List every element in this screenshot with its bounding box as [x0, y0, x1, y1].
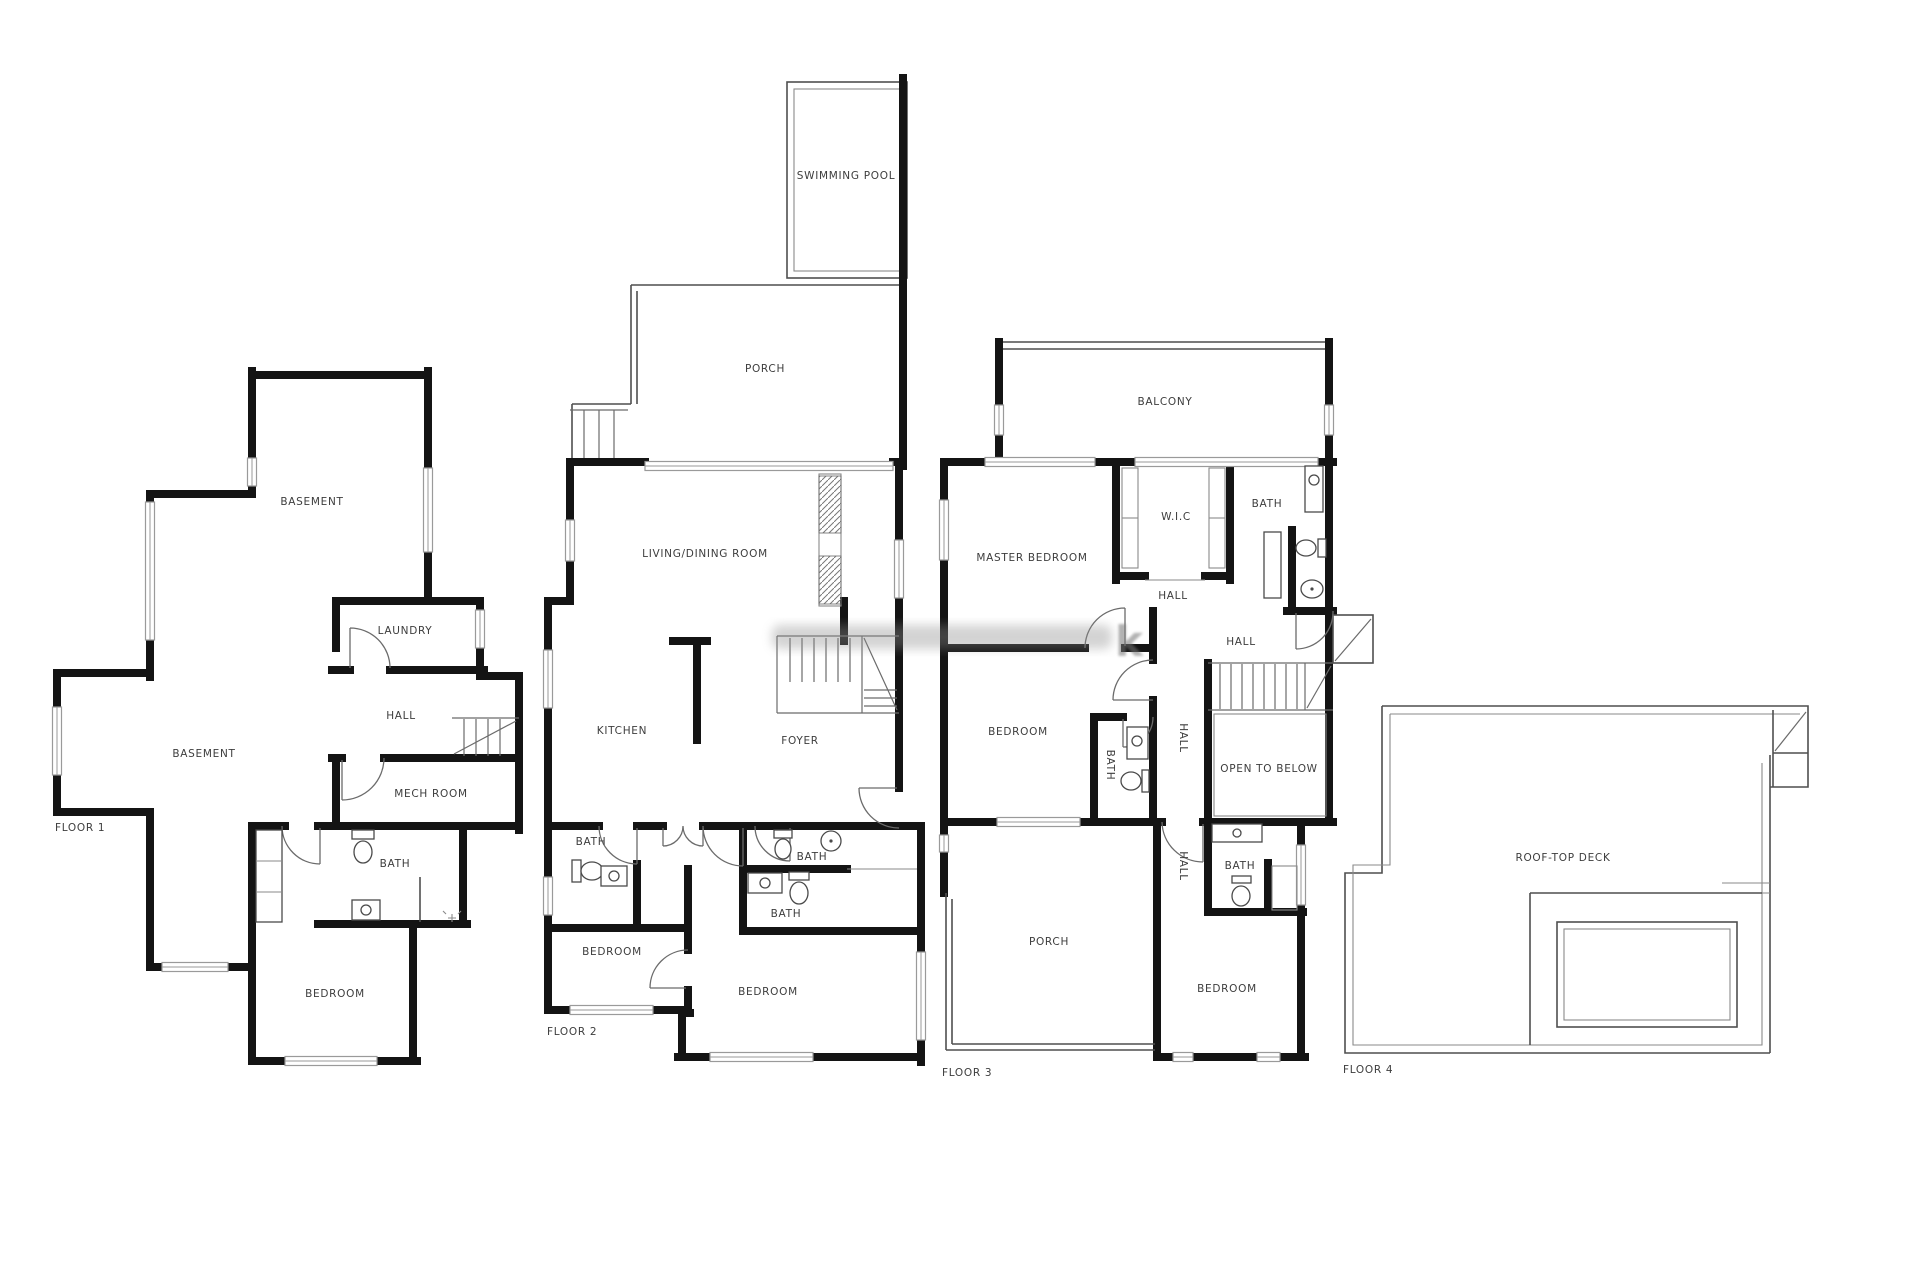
toilet-tank-icon [774, 830, 792, 838]
room-label-basement-lower: BASEMENT [172, 748, 235, 760]
floor-1-walls [57, 371, 519, 1061]
room-label-hall: HALL [386, 710, 416, 722]
floor-2-plan: SWIMMING POOL PORCH LIVING/DINING ROOM K… [544, 78, 926, 1062]
room-label-master-bedroom: MASTER BEDROOM [976, 552, 1087, 564]
room-label-bath: BATH [380, 858, 411, 870]
room-label-hall-lower: HALL [1177, 851, 1189, 881]
room-label-foyer: FOYER [781, 735, 819, 747]
counter [1264, 532, 1281, 598]
watermark: k [772, 617, 1144, 666]
room-label-hall-landing: HALL [1226, 636, 1256, 648]
floor-4-plan: ROOF-TOP DECK FLOOR 4 [1343, 706, 1808, 1076]
floor-1-title: FLOOR 1 [55, 822, 105, 834]
room-label-balcony: BALCONY [1137, 396, 1192, 408]
closet [256, 830, 282, 922]
room-label-bedroom-lower: BEDROOM [1197, 983, 1257, 995]
room-label-hall-corridor: HALL [1177, 723, 1189, 753]
room-label-kitchen: KITCHEN [597, 725, 647, 737]
floor-3-plan: BALCONY MASTER BEDROOM W.I.C BATH HALL H… [940, 342, 1374, 1079]
toilet-tank-icon [1232, 876, 1251, 883]
toilet-icon [1121, 772, 1141, 790]
room-label-bedroom-middle: BEDROOM [988, 726, 1048, 738]
wic-closets [1122, 468, 1225, 580]
floor-plan-page: BASEMENT BASEMENT LAUNDRY HALL MECH ROOM… [0, 0, 1920, 1280]
toilet-icon [1296, 540, 1316, 556]
toilet-icon [1232, 886, 1250, 906]
floor-4-title: FLOOR 4 [1343, 1064, 1393, 1076]
room-label-bedroom-left: BEDROOM [582, 946, 642, 958]
room-label-bath-lower-right: BATH [771, 908, 802, 920]
toilet-icon [775, 839, 791, 859]
room-label-bedroom-right: BEDROOM [738, 986, 798, 998]
room-label-swimming-pool: SWIMMING POOL [797, 170, 896, 182]
roof-deck-outline [1345, 706, 1808, 1053]
room-label-living-dining: LIVING/DINING ROOM [642, 548, 768, 560]
vanity-icon [1305, 466, 1323, 512]
room-label-laundry: LAUNDRY [378, 625, 433, 637]
watermark-glyph: k [1115, 617, 1144, 666]
toilet-tank-icon [1318, 539, 1326, 557]
floor-3-porch-outline [946, 893, 1155, 1050]
fireplace [819, 474, 841, 606]
room-label-porch: PORCH [1029, 936, 1069, 948]
floor-4-labels: ROOF-TOP DECK FLOOR 4 [1343, 852, 1611, 1076]
floor-1-plan: BASEMENT BASEMENT LAUNDRY HALL MECH ROOM… [53, 371, 520, 1066]
floor-2-walls [548, 78, 921, 1062]
shower-icon [1272, 866, 1297, 910]
floor-3-stairs [1208, 615, 1373, 710]
room-label-bath-lower: BATH [1225, 860, 1256, 872]
floor-1-stairs [452, 718, 519, 756]
room-label-roof-top-deck: ROOF-TOP DECK [1515, 852, 1610, 864]
room-label-bath-middle: BATH [1104, 750, 1116, 781]
floor-2-title: FLOOR 2 [547, 1026, 597, 1038]
room-label-basement-upper: BASEMENT [280, 496, 343, 508]
toilet-icon [790, 882, 808, 904]
floor-3-title: FLOOR 3 [942, 1067, 992, 1079]
skylight-outline [1557, 922, 1737, 1027]
room-label-bath-upper-right: BATH [797, 851, 828, 863]
floor-2-porch-outline [570, 285, 899, 462]
room-label-wic: W.I.C [1161, 511, 1191, 523]
room-label-mech-room: MECH ROOM [394, 788, 467, 800]
room-label-bath-left: BATH [576, 836, 607, 848]
toilet-tank-icon [572, 860, 581, 882]
toilet-icon [354, 841, 372, 863]
toilet-tank-icon [1142, 770, 1149, 792]
toilet-icon [581, 862, 603, 880]
room-label-hall-upper: HALL [1158, 590, 1188, 602]
room-label-bath-top: BATH [1252, 498, 1283, 510]
floor-plan-drawing: BASEMENT BASEMENT LAUNDRY HALL MECH ROOM… [0, 0, 1920, 1280]
room-label-porch: PORCH [745, 363, 785, 375]
toilet-tank-icon [352, 830, 374, 839]
room-label-open-to-below: OPEN TO BELOW [1220, 763, 1318, 775]
toilet-tank-icon [789, 872, 809, 880]
room-label-bedroom: BEDROOM [305, 988, 365, 1000]
